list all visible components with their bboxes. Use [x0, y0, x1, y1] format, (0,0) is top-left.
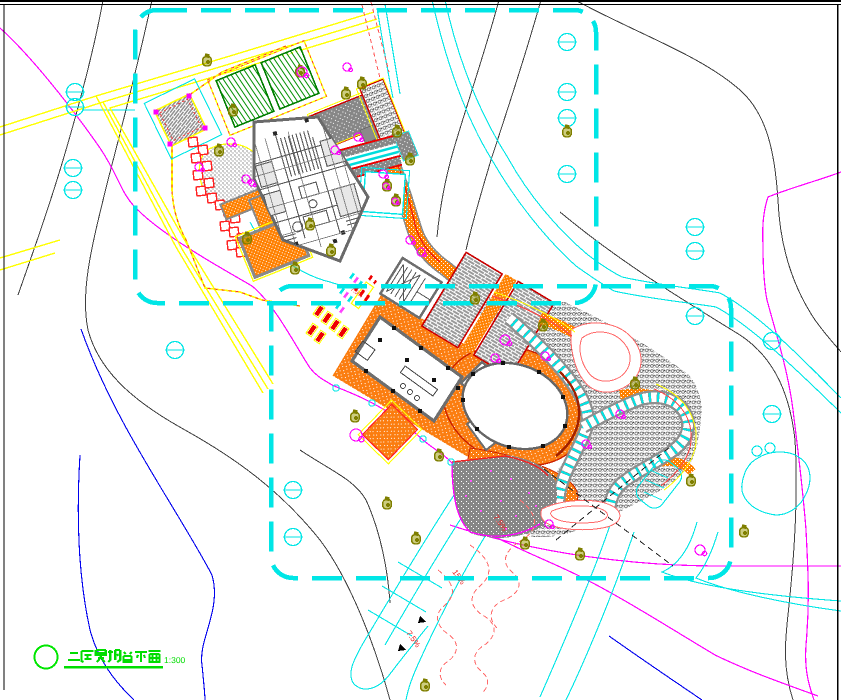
svg-text:1:300: 1:300 [164, 655, 186, 665]
